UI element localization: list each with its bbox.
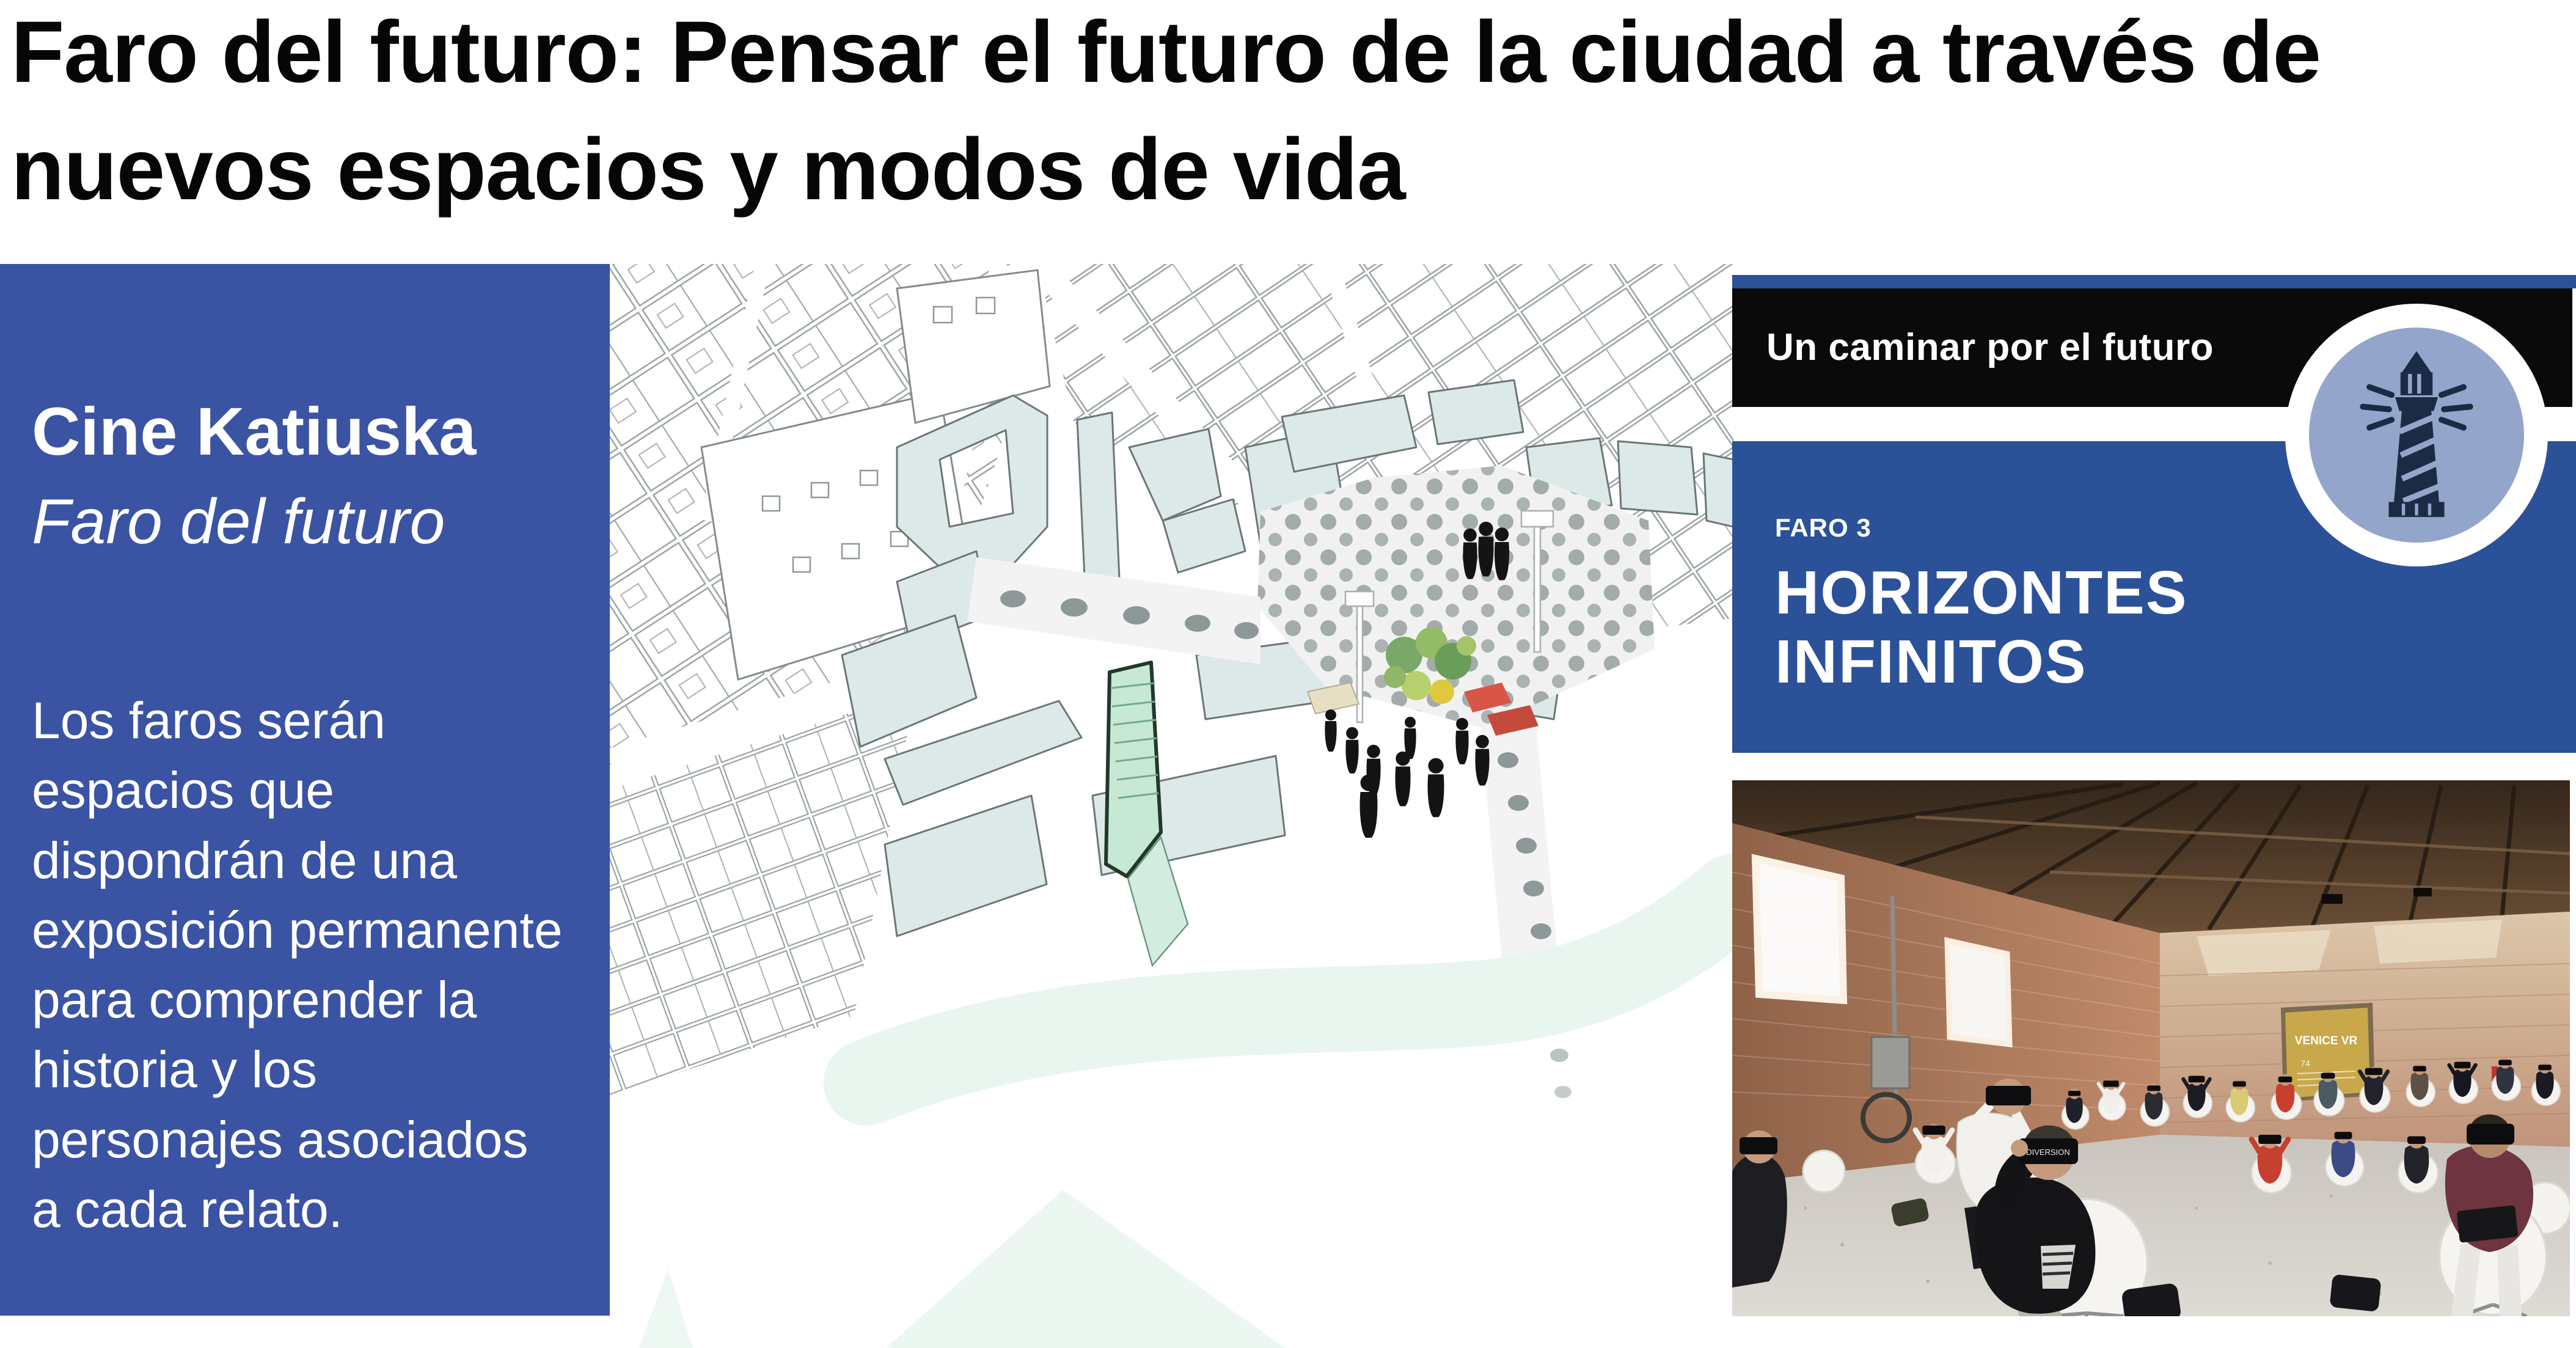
panel-heading: Cine Katiuska [32,394,582,471]
panel-body-text: Los faros serán espacios que dispondrán … [32,686,582,1244]
sign-title: VENICE VR [2295,1035,2358,1047]
faro-title: HORIZONTES INFINITOS [1775,559,2576,697]
vr-audience-photo: VENICE VR 74 [1732,780,2570,1316]
accent-strip [1732,275,2576,288]
lighthouse-icon [2346,346,2487,530]
page-title: Faro del futuro: Pensar el futuro de la … [11,0,2516,228]
city-map [610,264,1733,1348]
section-bar-label: Un caminar por el futuro [1766,326,2214,368]
headset-label: DIVERSION [2026,1148,2070,1157]
lighthouse-badge [2285,304,2548,566]
city-map-illustration [610,264,1733,1348]
sign-badge: 74 [2300,1058,2310,1068]
panel-subtitle: Faro del futuro [32,486,582,559]
left-text-panel: Cine Katiuska Faro del futuro Los faros … [0,264,610,1316]
